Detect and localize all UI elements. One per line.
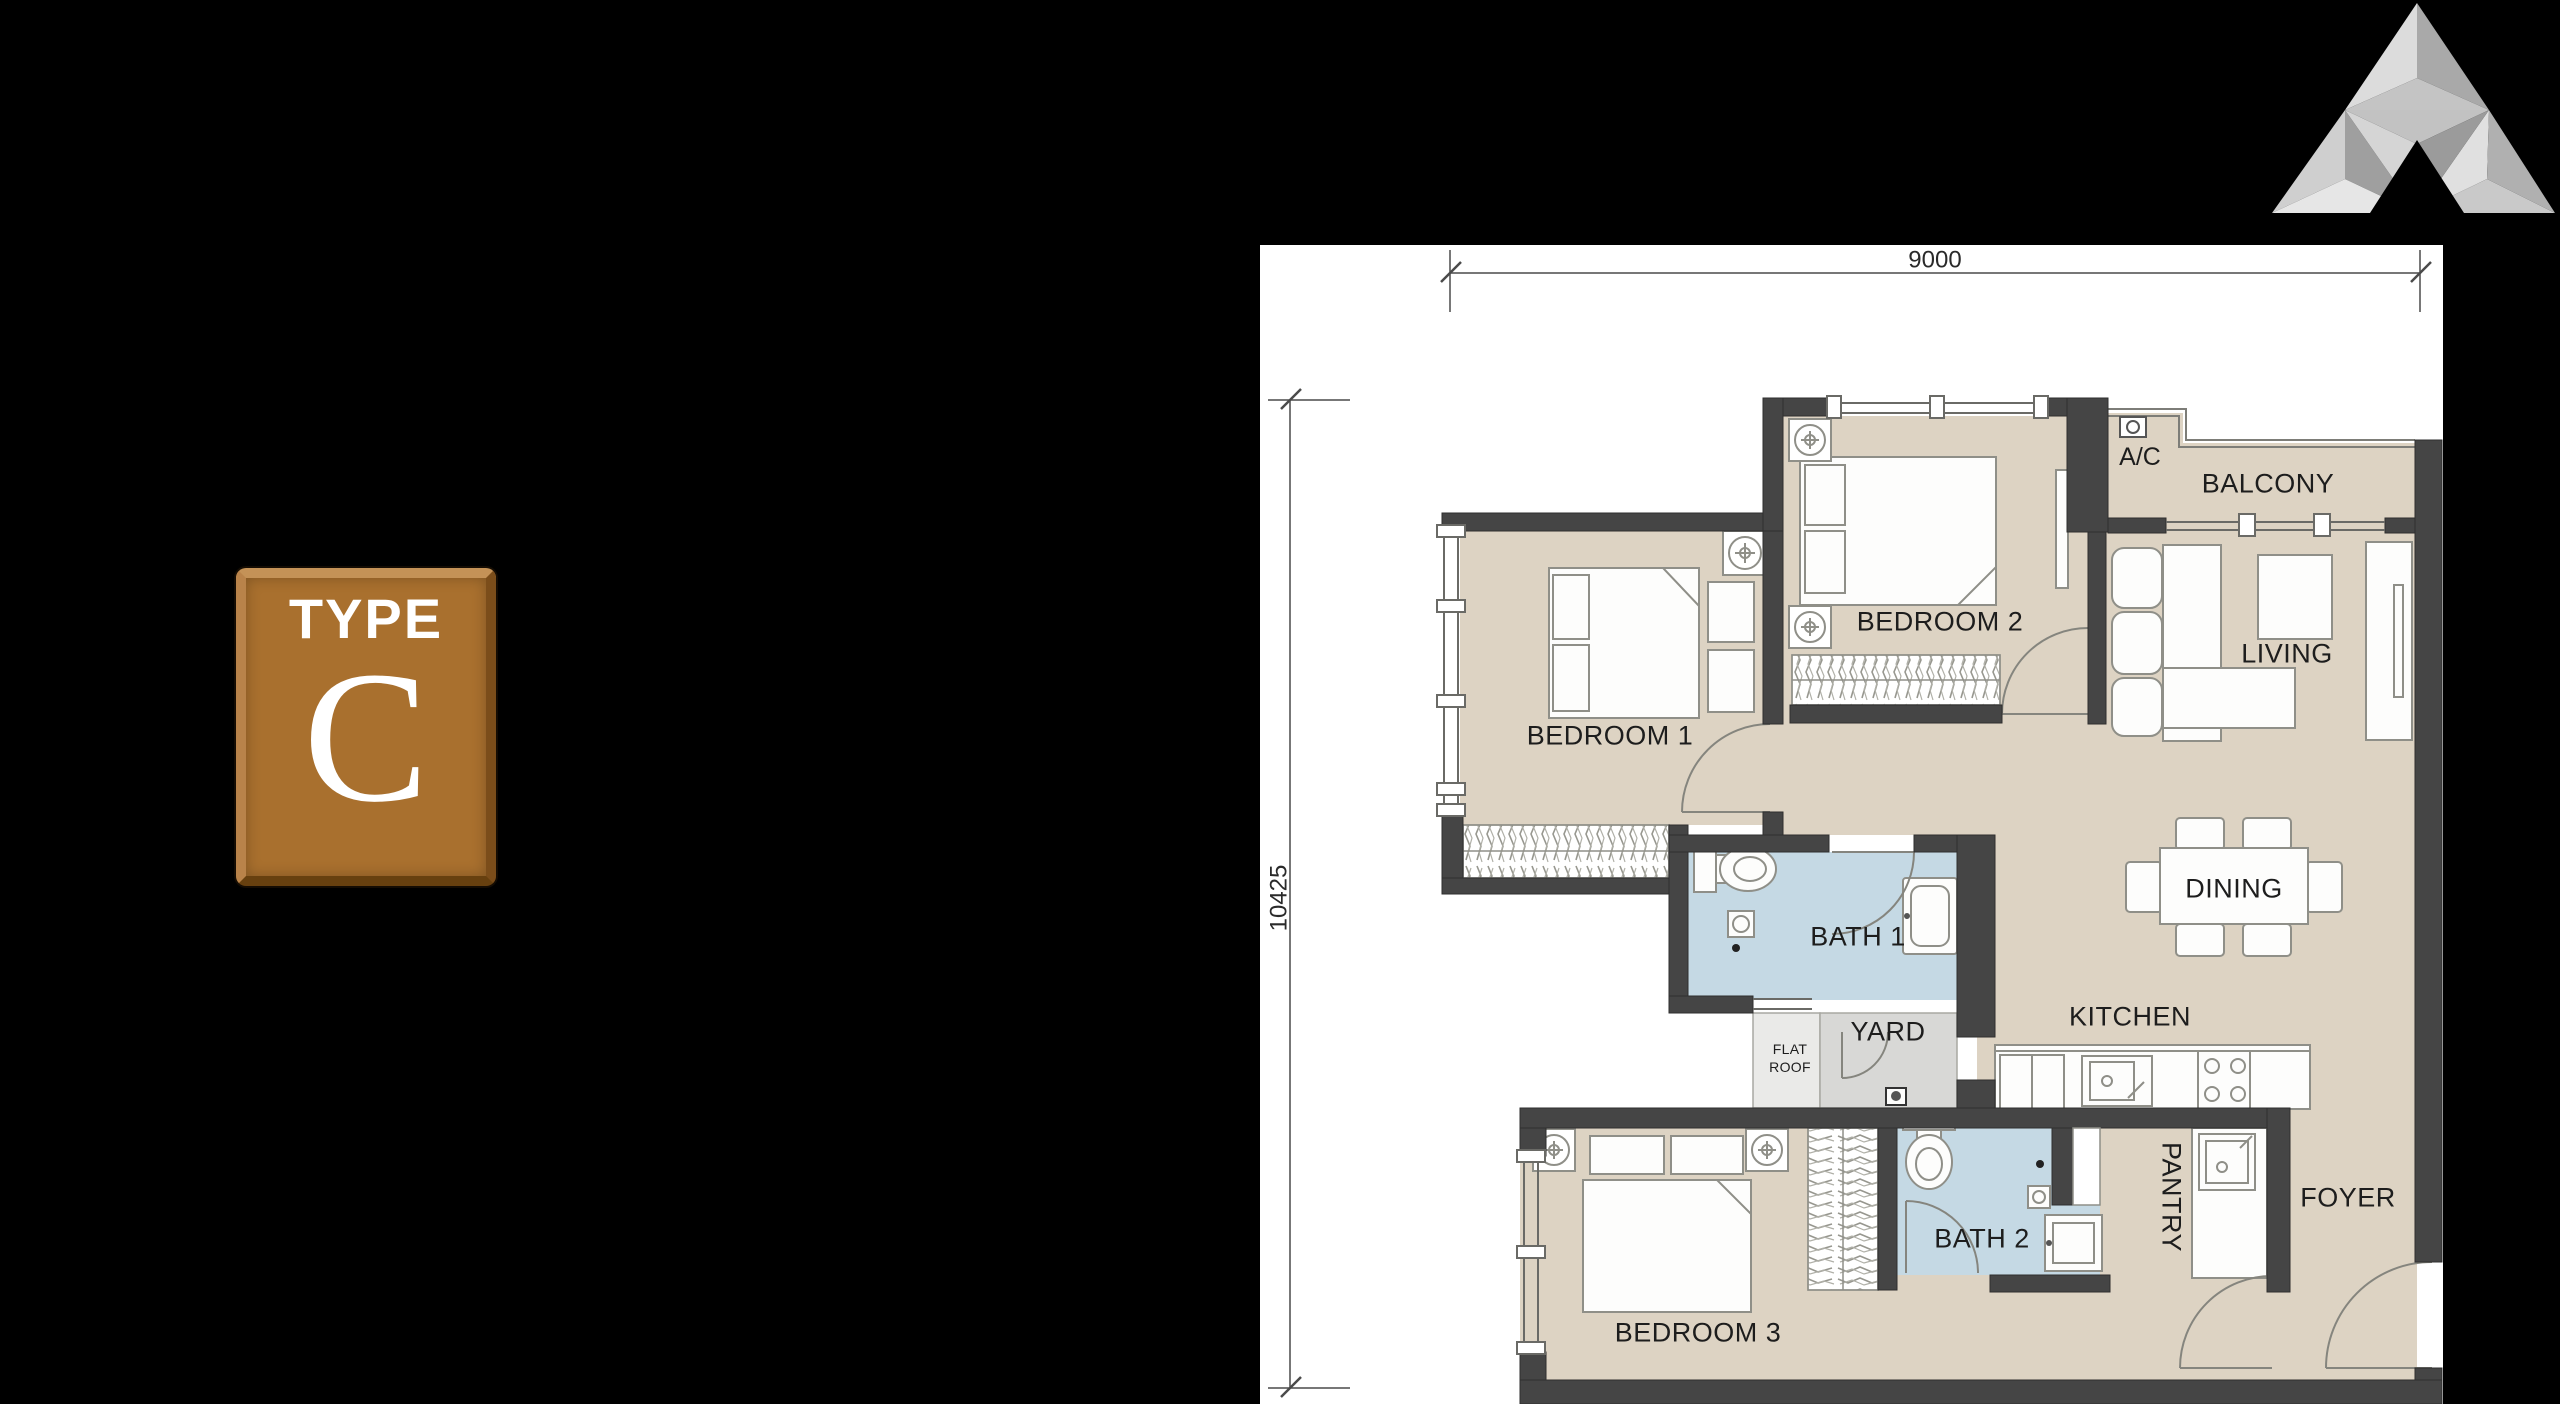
room-label-yard: YARD: [1850, 1016, 1925, 1046]
shower-bath2: [2045, 1215, 2102, 1271]
faucet-bath1: [1732, 944, 1740, 952]
dimension-height-label: 10425: [1265, 865, 1292, 932]
room-label-dining: DINING: [2185, 873, 2283, 903]
water-heater: [1886, 1088, 1906, 1105]
bath2-niche: [2073, 1128, 2100, 1205]
ac-unit-icon: [2120, 417, 2146, 437]
room-label-bedroom1: BEDROOM 1: [1527, 720, 1694, 750]
room-label-bath1: BATH 1: [1810, 921, 1906, 951]
coffee-table: [2258, 555, 2332, 639]
room-label-living: LIVING: [2241, 638, 2333, 668]
room-label-flat-roof-1: FLAT: [1773, 1041, 1808, 1057]
pantry-counter: [2192, 1128, 2267, 1278]
room-label-bath2: BATH 2: [1934, 1223, 2030, 1253]
room-label-bedroom2: BEDROOM 2: [1857, 606, 2024, 636]
floor-plan: BEDROOM 1 BEDROOM 2 BEDROOM 3 BATH 1 BAT…: [0, 0, 2560, 1404]
tv-panel-bedroom2: [2056, 470, 2068, 588]
floor-trap-bath2: [2028, 1186, 2050, 1208]
room-label-flat-roof-2: ROOF: [1769, 1059, 1811, 1075]
room-label-ac: A/C: [2119, 443, 2161, 471]
toilet-bath1: [1694, 846, 1716, 892]
dimension-width-label: 9000: [1908, 246, 1961, 273]
page: TYPE C: [0, 0, 2560, 1404]
bed-bedroom1: [1549, 568, 1754, 718]
kitchen-sink: [2082, 1056, 2152, 1106]
kitchen-counter: [1995, 1045, 2310, 1109]
tv-cabinet: [2366, 542, 2412, 740]
room-label-foyer: FOYER: [2300, 1182, 2396, 1212]
stove: [2198, 1051, 2250, 1109]
faucet-bath2: [2036, 1160, 2044, 1168]
vanity-bath1: [1728, 911, 1754, 937]
room-label-pantry: PANTRY: [2157, 1142, 2187, 1252]
room-label-bedroom3: BEDROOM 3: [1615, 1317, 1782, 1347]
room-label-balcony: BALCONY: [2202, 468, 2335, 498]
shower-bath1: [1903, 878, 1957, 954]
room-label-kitchen: KITCHEN: [2069, 1001, 2191, 1031]
